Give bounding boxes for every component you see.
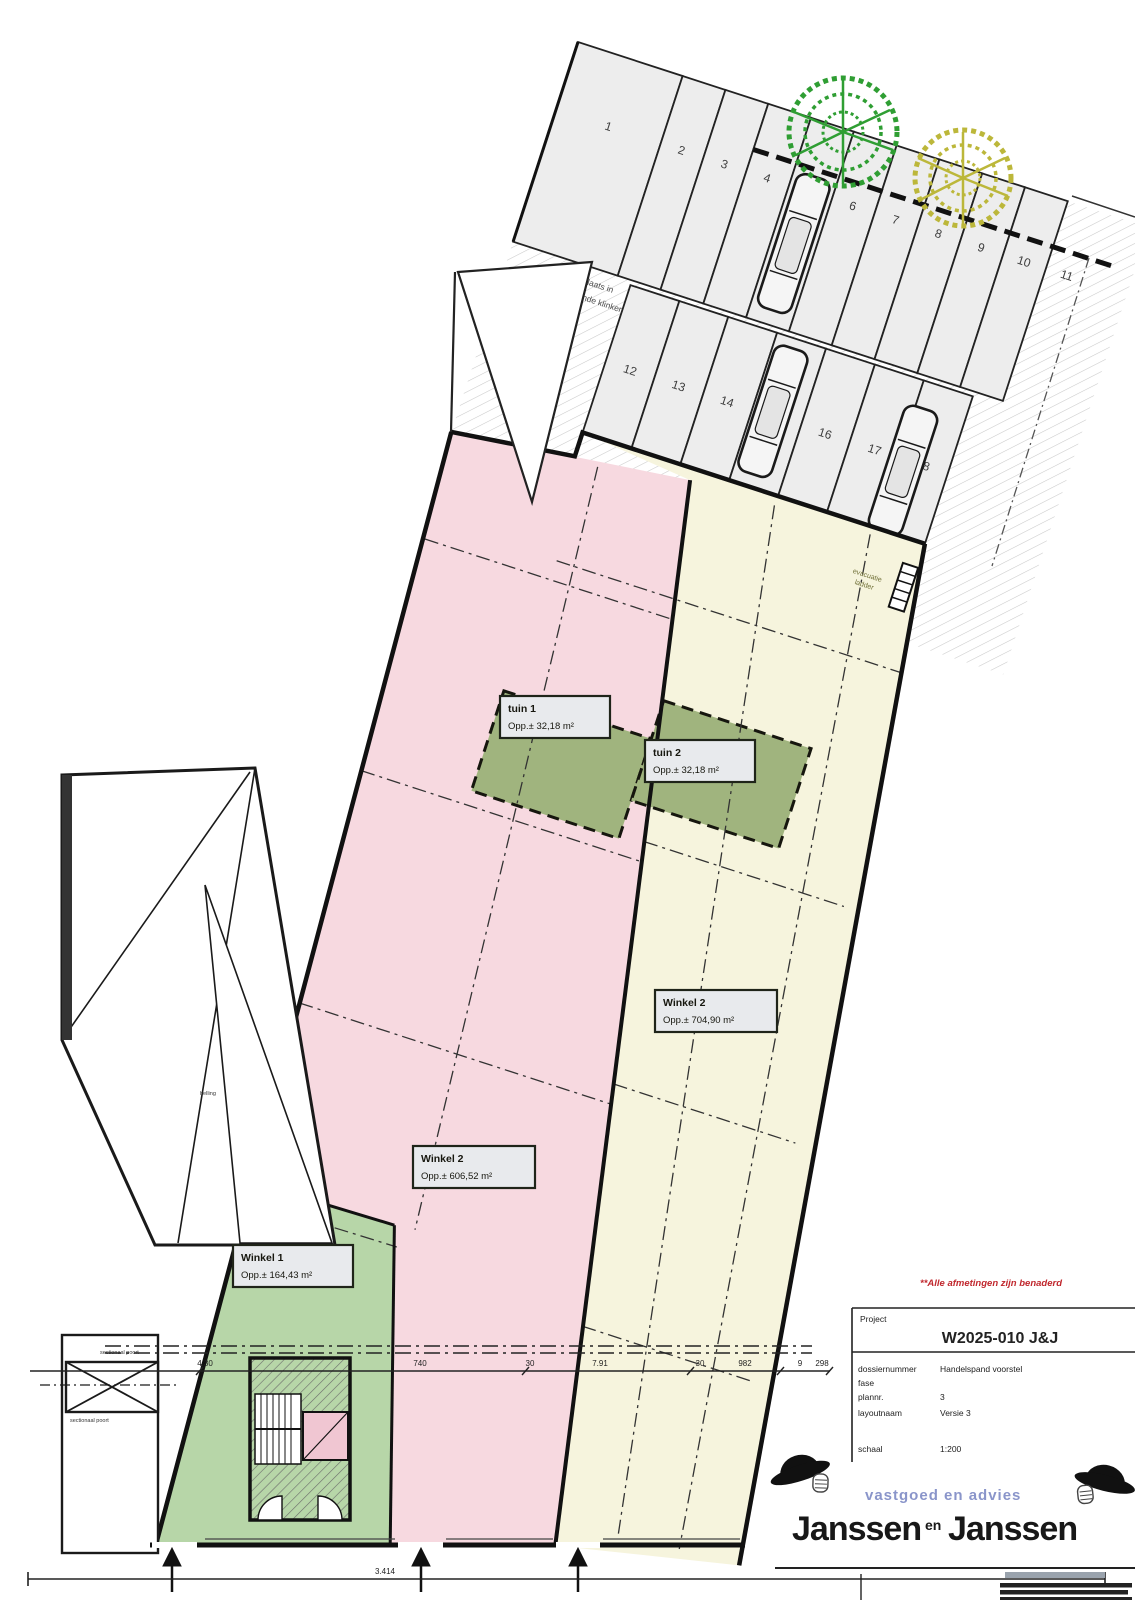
floorplan-canvas: 1 2 3 4 5 6 7 8 9 10 11 parkeerplaats in…: [0, 0, 1135, 1600]
area-size: Opp.± 32,18 m²: [508, 721, 574, 732]
tuin1-label: tuin 1 Opp.± 32,18 m²: [500, 696, 610, 738]
area-title: tuin 1: [508, 703, 536, 715]
area-size: Opp.± 32,18 m²: [653, 765, 719, 776]
total-dim-value: 3.414: [375, 1567, 396, 1576]
dim-value: 4.30: [197, 1359, 213, 1368]
tb-row-label: layoutnaam: [858, 1408, 902, 1418]
area-title: Winkel 1: [241, 1252, 284, 1264]
bowler-hat-left-icon: [765, 1446, 838, 1508]
dim-value: 740: [413, 1359, 427, 1368]
logo-name-last: Janssen: [948, 1510, 1077, 1548]
dim-value: 30: [696, 1359, 705, 1368]
tb-row-value: Handelspand voorstel: [940, 1364, 1022, 1374]
dim-value: 298: [815, 1359, 829, 1368]
logo-tagline: vastgoed en advies: [865, 1487, 1021, 1504]
tb-row-label: dossiernummer: [858, 1364, 917, 1374]
title-block: Project W2025-010 J&J dossiernummer Hand…: [852, 1308, 1135, 1462]
area-size: Opp.± 164,43 m²: [241, 1270, 312, 1281]
garage-gate-area: sectionaal poort sectionaal poort: [40, 1335, 180, 1553]
winkel2-rechts-label: Winkel 2 Opp.± 704,90 m²: [655, 990, 777, 1032]
tb-row-label: schaal: [858, 1444, 883, 1454]
logo-name-first: Janssen: [792, 1510, 921, 1548]
dimensions-note: **Alle afmetingen zijn benaderd: [920, 1278, 1062, 1289]
area-size: Opp.± 606,52 m²: [421, 1171, 492, 1182]
dim-value: 9: [798, 1359, 803, 1368]
fine-print-bar: [1005, 1572, 1105, 1578]
stair-core: [250, 1358, 350, 1520]
poort-label-onder: sectionaal poort: [70, 1418, 109, 1424]
tb-row-value: Versie 3: [940, 1408, 971, 1418]
area-title: tuin 2: [653, 747, 681, 759]
total-dimension: 3.414: [28, 1567, 1105, 1586]
tb-row-label: fase: [858, 1378, 874, 1388]
fine-print-bar: [1000, 1583, 1132, 1588]
area-title: Winkel 2: [663, 997, 706, 1009]
dim-value: 982: [738, 1359, 752, 1368]
tuin2-label: tuin 2 Opp.± 32,18 m²: [645, 740, 755, 782]
tb-row-value: 1:200: [940, 1444, 962, 1454]
bowler-hat-right-icon: [1068, 1458, 1135, 1516]
area-title: Winkel 2: [421, 1153, 464, 1165]
dim-value: 30: [526, 1359, 535, 1368]
project-number: W2025-010 J&J: [942, 1330, 1059, 1347]
logo-name-mid: en: [925, 1517, 941, 1533]
area-size: Opp.± 704,90 m²: [663, 1015, 734, 1026]
tb-row-label: plannr.: [858, 1392, 884, 1402]
winkel1-label: Winkel 1 Opp.± 164,43 m²: [233, 1245, 353, 1287]
neighbor-structure-left: [62, 768, 335, 1245]
site-plan-drawing: 1 2 3 4 5 6 7 8 9 10 11 parkeerplaats in…: [0, 0, 1135, 1600]
winkel2-links-label: Winkel 2 Opp.± 606,52 m²: [413, 1146, 535, 1188]
helling-label: helling: [200, 1091, 216, 1097]
tb-row-value: 3: [940, 1392, 945, 1402]
company-logo: vastgoed en advies Janssen en Janssen: [765, 1446, 1135, 1600]
fine-print-bar: [1000, 1590, 1128, 1595]
dim-value: 7.91: [592, 1359, 608, 1368]
project-label: Project: [860, 1314, 887, 1324]
